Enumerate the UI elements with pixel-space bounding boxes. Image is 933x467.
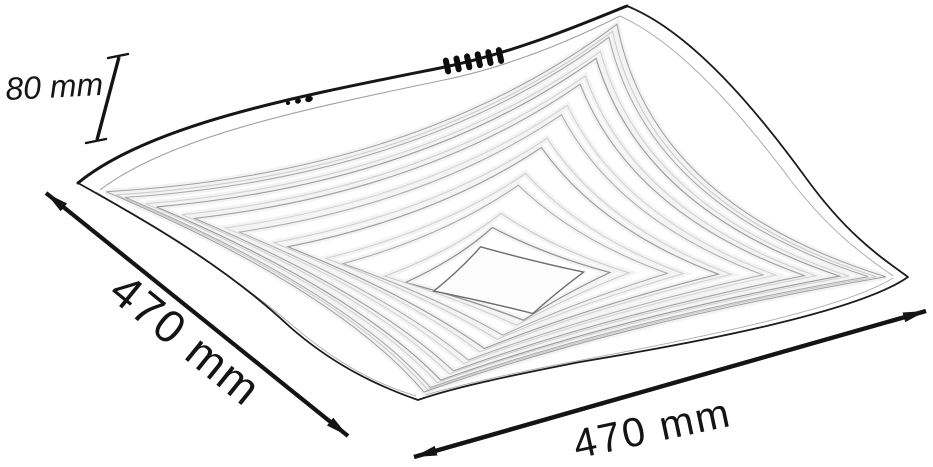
height-dimension: 80 mm bbox=[4, 54, 128, 143]
diagram-canvas: 80 mm 470 mm 470 mm bbox=[0, 0, 933, 467]
product-dimension-diagram: 80 mm 470 mm 470 mm bbox=[0, 0, 933, 467]
height-dimension-label: 80 mm bbox=[4, 66, 104, 107]
width-dimension-label: 470 mm bbox=[569, 389, 735, 467]
